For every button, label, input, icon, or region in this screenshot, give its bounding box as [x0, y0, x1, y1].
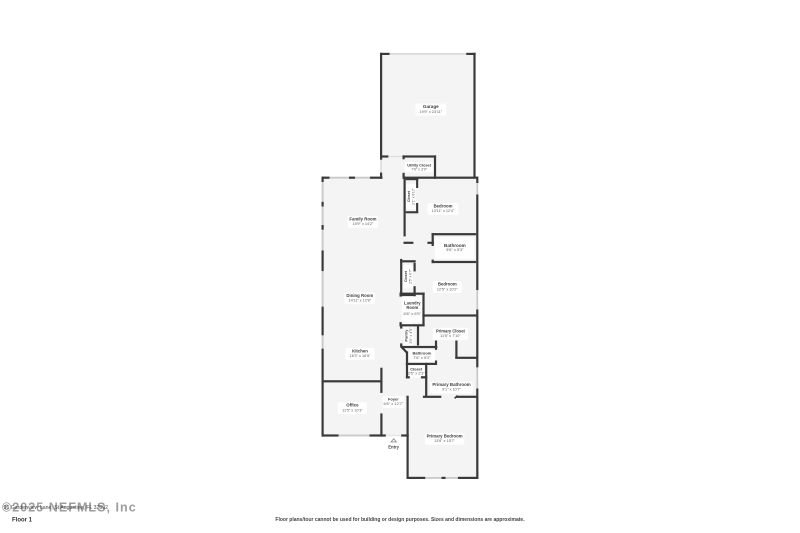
svg-text:Kitchen: Kitchen: [352, 348, 368, 353]
svg-text:Garage: Garage: [423, 104, 439, 109]
svg-text:14'11" x 12'8": 14'11" x 12'8": [348, 299, 371, 303]
svg-text:9'6" x 5'3": 9'6" x 5'3": [446, 247, 464, 252]
svg-text:11'5" x 10'3": 11'5" x 10'3": [342, 408, 363, 412]
svg-text:Primary Closet: Primary Closet: [436, 328, 466, 333]
svg-text:19'9" x 23'11": 19'9" x 23'11": [419, 110, 442, 114]
svg-text:Primary Bathroom: Primary Bathroom: [432, 382, 470, 387]
svg-text:Bedroom: Bedroom: [434, 204, 453, 209]
svg-text:15'9" x 14'2": 15'9" x 14'2": [352, 222, 373, 226]
svg-text:13'11" x 12'4": 13'11" x 12'4": [432, 209, 455, 213]
svg-text:Entry: Entry: [388, 444, 399, 449]
svg-text:Bedroom: Bedroom: [438, 282, 457, 287]
svg-text:Pantry: Pantry: [403, 329, 408, 342]
svg-text:Office: Office: [346, 403, 359, 408]
svg-text:Floor 1: Floor 1: [12, 518, 33, 524]
svg-text:11'5" x 7'10": 11'5" x 7'10": [440, 334, 461, 338]
svg-text:12'5" x 10'2": 12'5" x 10'2": [437, 287, 458, 291]
svg-text:9'1" x 10'7": 9'1" x 10'7": [442, 388, 461, 392]
svg-text:Closet: Closet: [404, 270, 408, 282]
svg-text:7'6" x 5'3": 7'6" x 5'3": [413, 355, 431, 360]
svg-text:Room: Room: [406, 305, 418, 310]
svg-text:6'6" x 12'7": 6'6" x 12'7": [384, 401, 404, 406]
svg-text:6'6" x 6'5": 6'6" x 6'5": [404, 311, 422, 316]
svg-text:Closet: Closet: [407, 190, 411, 202]
svg-text:Primary Bedroom: Primary Bedroom: [427, 433, 463, 438]
svg-text:2'6" x 2'3": 2'6" x 2'3": [408, 371, 426, 376]
svg-text:7'6" x 3'9": 7'6" x 3'9": [411, 168, 427, 172]
svg-text:16'3" x 16'5": 16'3" x 16'5": [350, 354, 371, 358]
svg-text:3'0" x 4'5": 3'0" x 4'5": [409, 327, 413, 344]
svg-text:Utility Closet: Utility Closet: [407, 162, 431, 167]
svg-text:13'6" x 15'7": 13'6" x 15'7": [434, 439, 455, 443]
svg-text:2'1" x 6'10": 2'1" x 6'10": [411, 187, 415, 205]
svg-text:Floor plans/tour cannot be use: Floor plans/tour cannot be used for buil…: [275, 517, 525, 523]
svg-text:Family Room: Family Room: [349, 217, 376, 222]
svg-text:Dining Room: Dining Room: [346, 293, 373, 298]
svg-text:2'5" x 6'7": 2'5" x 6'7": [409, 268, 413, 284]
svg-text:96 Gardenview Lane, St Augusti: 96 Gardenview Lane, St Augustine, FL 320…: [4, 505, 109, 511]
